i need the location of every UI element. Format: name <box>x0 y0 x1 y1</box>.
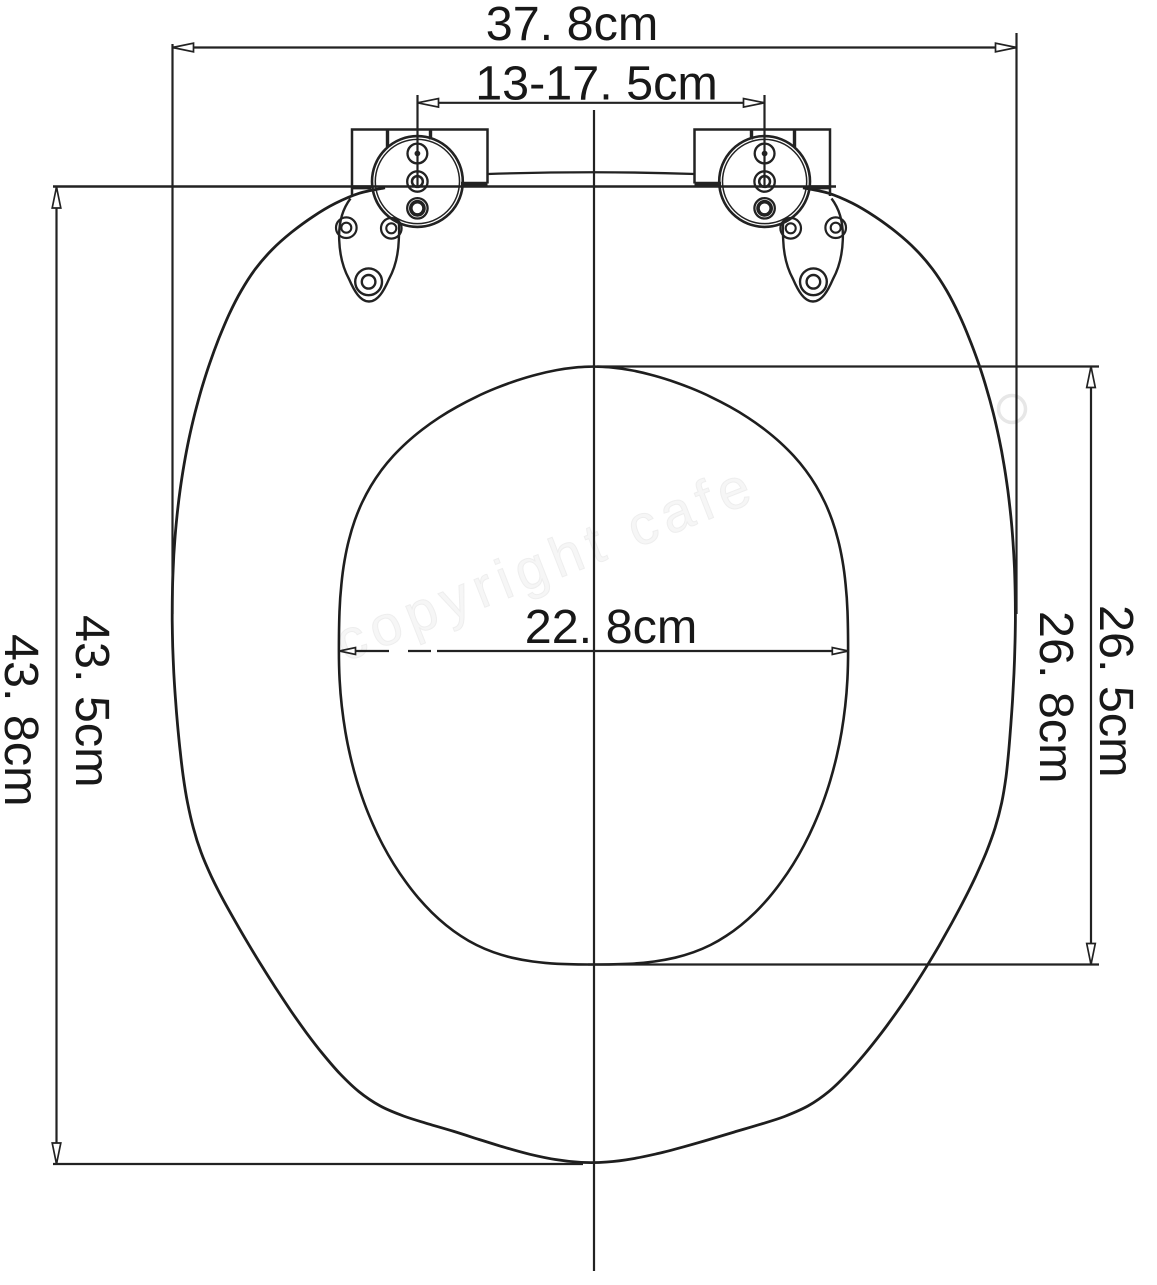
svg-text:43. 8cm: 43. 8cm <box>0 634 48 807</box>
svg-text:43. 5cm: 43. 5cm <box>65 615 119 788</box>
svg-text:13-17. 5cm: 13-17. 5cm <box>475 57 718 111</box>
svg-text:37. 8cm: 37. 8cm <box>486 0 659 51</box>
svg-text:26. 8cm: 26. 8cm <box>1029 611 1083 784</box>
svg-text:22. 8cm: 22. 8cm <box>525 600 698 654</box>
svg-text:26. 5cm: 26. 5cm <box>1089 605 1143 778</box>
